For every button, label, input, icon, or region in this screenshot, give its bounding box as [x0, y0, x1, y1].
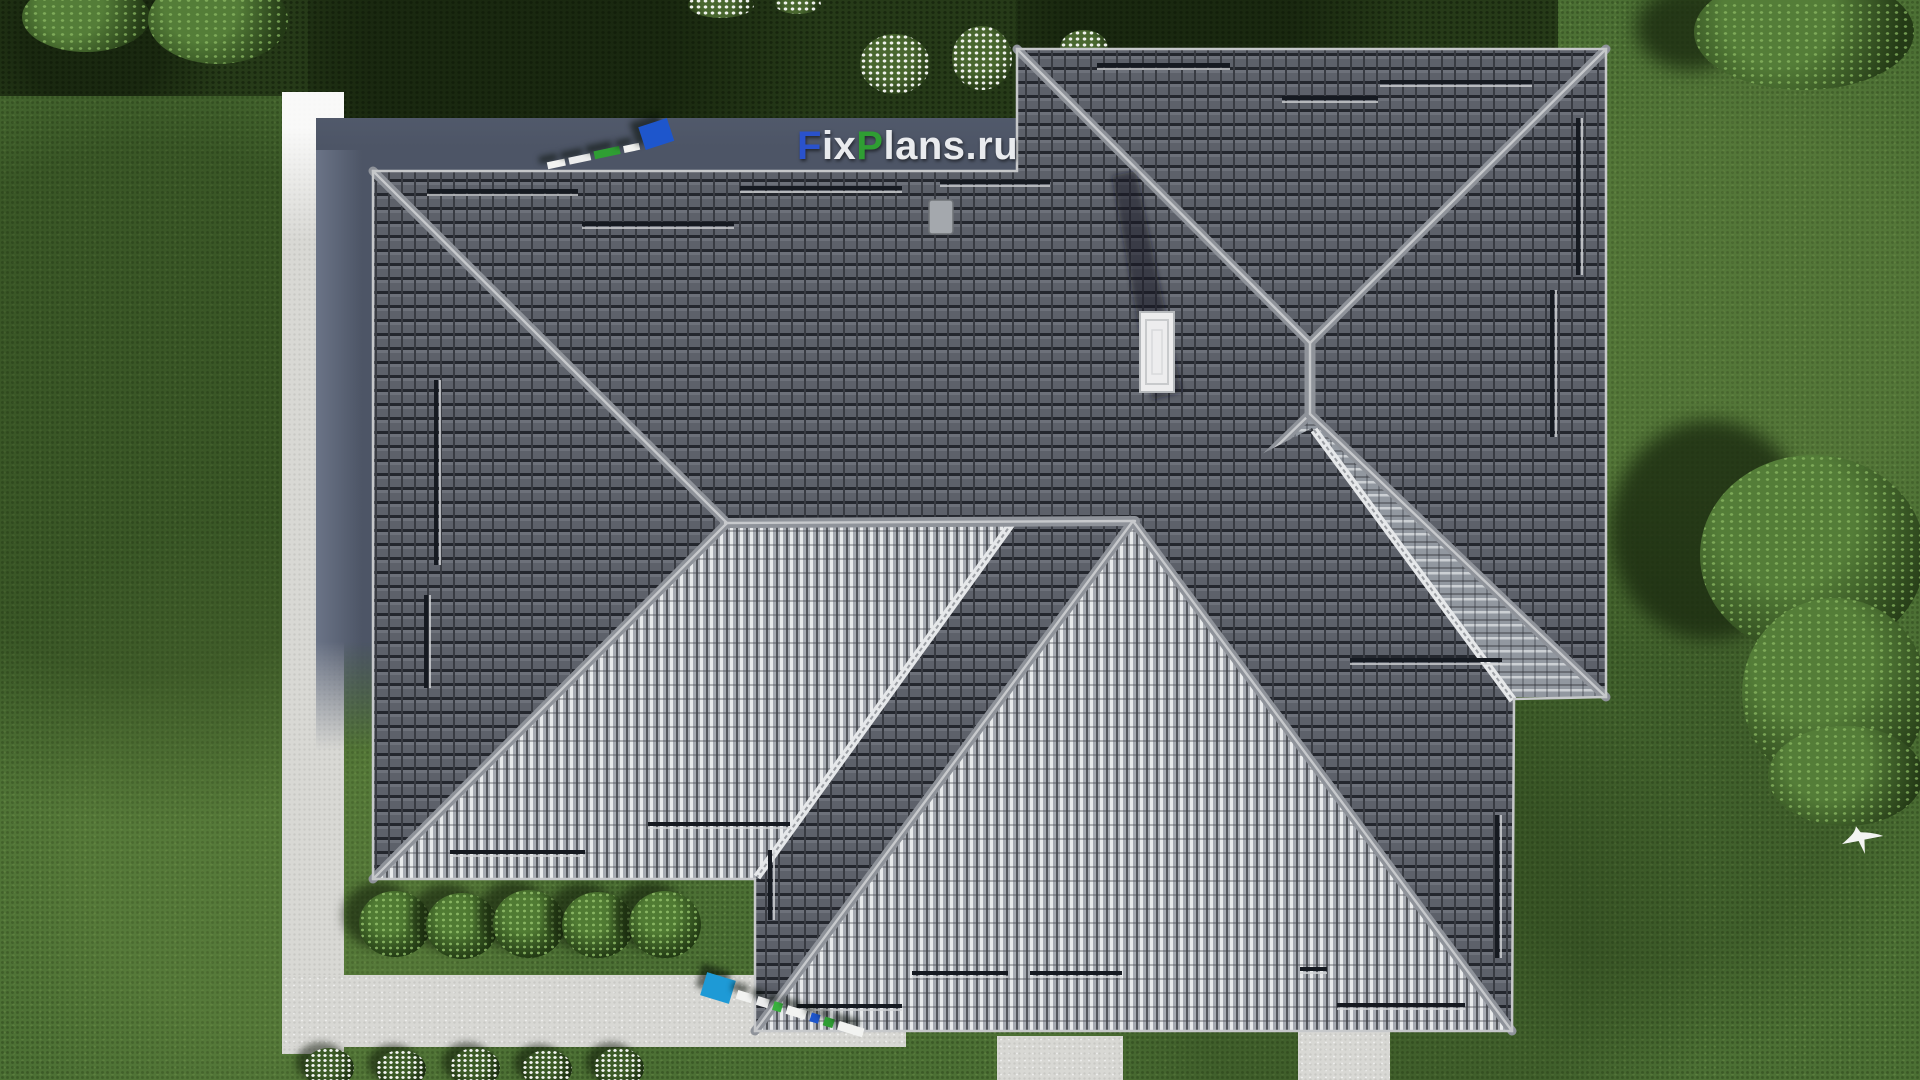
watermark-letters-lans: lans: [883, 124, 965, 168]
watermark-letter-p: P: [856, 124, 883, 168]
roof-vent: [929, 200, 953, 234]
watermark-fixplans: FixPlans.ru: [797, 126, 1018, 166]
watermark-dot-ru: .ru: [966, 124, 1019, 168]
aerial-render-scene: FixPlans.ru: [0, 0, 1920, 1080]
watermark-letters-ix: ix: [822, 124, 856, 168]
roof-hatch: [1140, 312, 1174, 392]
watermark-letter-f: F: [797, 124, 822, 168]
